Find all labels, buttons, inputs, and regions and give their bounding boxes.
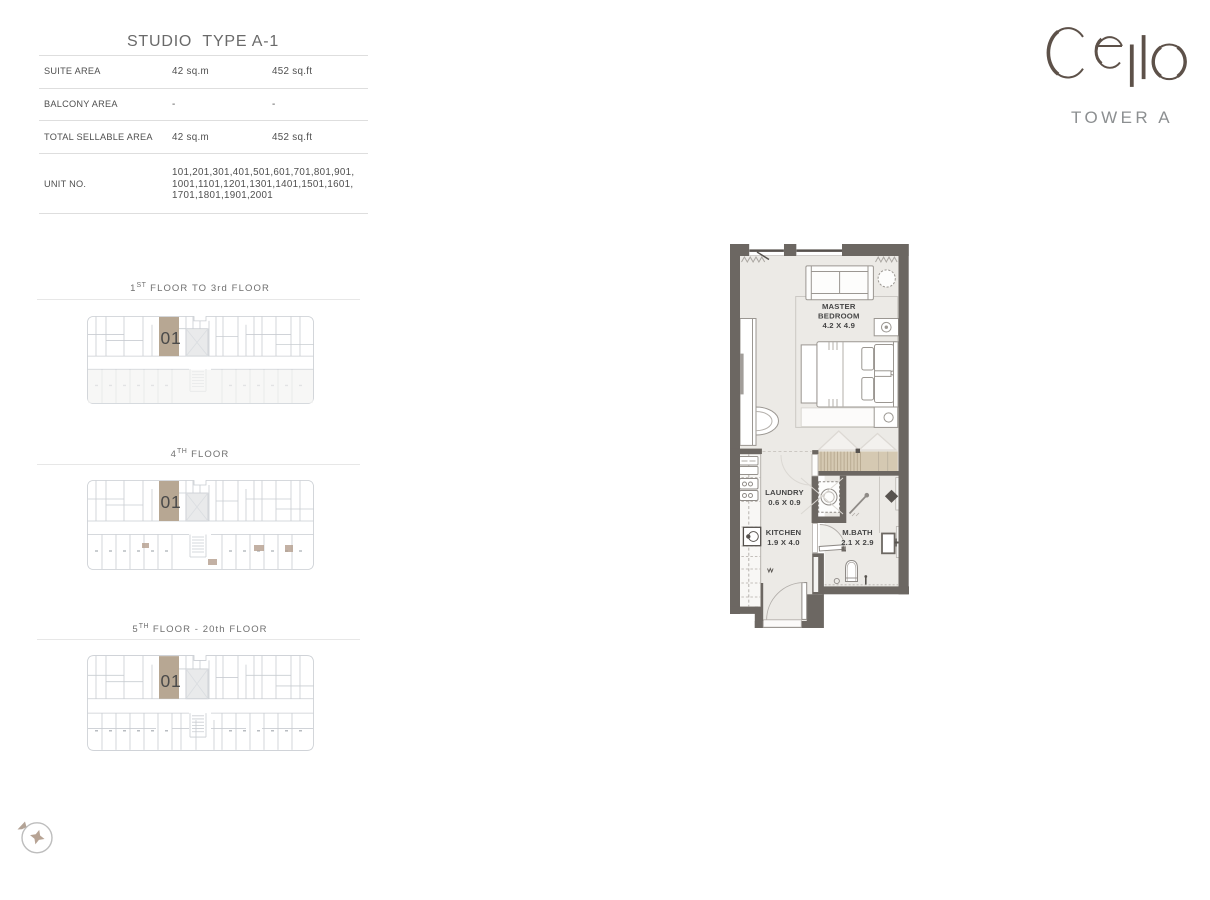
svg-text:0.6 X 0.9: 0.6 X 0.9 [768, 498, 801, 507]
svg-text:KITCHEN: KITCHEN [766, 528, 802, 537]
svg-text:LAUNDRY: LAUNDRY [765, 488, 804, 497]
svg-text:MASTER: MASTER [822, 302, 856, 311]
svg-text:BEDROOM: BEDROOM [818, 312, 860, 321]
svg-text:2.1 X 2.9: 2.1 X 2.9 [841, 538, 874, 547]
svg-text:4.2 X 4.9: 4.2 X 4.9 [823, 321, 856, 330]
svg-text:M.BATH: M.BATH [842, 528, 873, 537]
svg-text:1.9 X 4.0: 1.9 X 4.0 [767, 538, 800, 547]
